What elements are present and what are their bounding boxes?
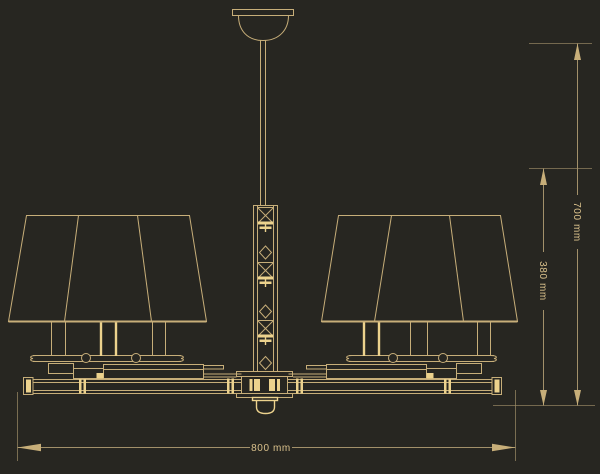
bobeche-knob — [132, 354, 141, 363]
finial-cup — [253, 398, 278, 414]
dimension-arrow-left — [18, 444, 42, 451]
dimension-arrow-down — [574, 390, 581, 406]
bobeche-knob — [82, 354, 91, 363]
canopy-plate — [233, 10, 294, 16]
lampshade-left — [9, 216, 207, 322]
shade-seam — [138, 216, 152, 322]
bobeche-scroll-end — [31, 356, 36, 362]
bobeche-plate-right — [347, 354, 497, 363]
candle-tubes-left — [52, 322, 166, 356]
arm-step-blocks-left — [49, 364, 242, 379]
column-ornament-xbox-2 — [258, 263, 274, 288]
dimension-label-width: 800 mm — [251, 443, 291, 454]
bobeche-scroll-end — [178, 356, 183, 362]
bobeche-knob — [439, 354, 448, 363]
suspension-rod — [261, 41, 266, 206]
shade-seam — [65, 216, 79, 322]
column-ornament-xbox-1 — [258, 208, 274, 233]
chandelier-technical-drawing: 800 mm 700 mm 380 mm — [0, 0, 600, 474]
column-ornament-diamond-1 — [260, 246, 272, 259]
dimension-arrow-right — [492, 444, 516, 451]
canopy-dome — [239, 16, 289, 41]
dimension-label-height-body: 380 mm — [537, 261, 548, 301]
dimension-arrow-up — [574, 44, 581, 61]
column-ornament-xbox-3 — [258, 321, 274, 346]
dimension-label-height-overall: 700 mm — [571, 202, 582, 242]
column-ornament-diamond-2 — [260, 305, 272, 318]
candle-tubes-right — [364, 322, 491, 356]
bobeche-scroll-end — [347, 356, 352, 362]
center-column — [254, 206, 278, 372]
ceiling-canopy — [233, 10, 294, 41]
bobeche-plate-left — [31, 354, 184, 363]
column-ornament-diamond-3 — [260, 357, 272, 370]
arm-bar — [24, 378, 502, 395]
dimension-arrow-down — [540, 390, 547, 406]
hub-top-collar — [237, 372, 293, 377]
center-hub — [237, 372, 293, 414]
bobeche-knob — [389, 354, 398, 363]
shade-seam — [375, 216, 392, 322]
arm-step-blocks-right — [289, 364, 482, 379]
hub-body — [242, 377, 288, 394]
dimension-arrow-up — [540, 169, 547, 186]
lampshade-right — [322, 216, 518, 322]
shade-seam — [450, 216, 464, 322]
bobeche-scroll-end — [491, 356, 496, 362]
